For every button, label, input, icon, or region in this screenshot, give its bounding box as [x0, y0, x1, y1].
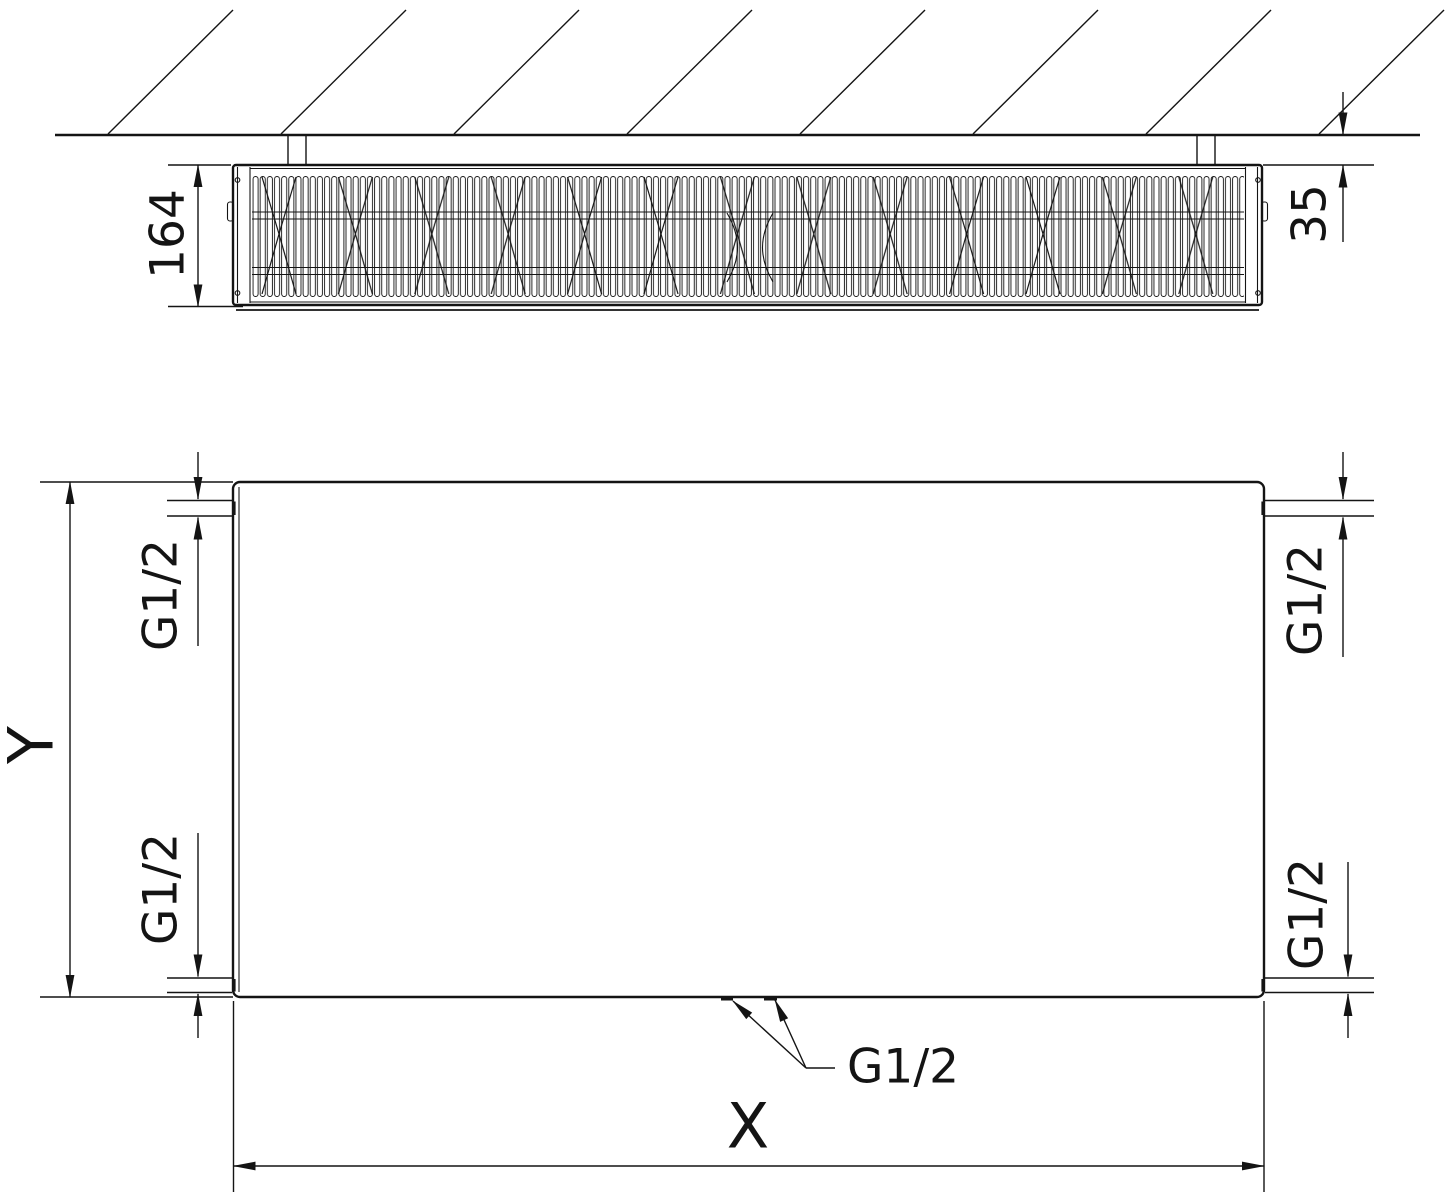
connection-stub-bottom-right — [1263, 978, 1374, 993]
width-dimension-label: X — [727, 1090, 769, 1163]
dimension-wall-gap: 35 — [1263, 92, 1374, 244]
mounting-bracket-left — [288, 136, 306, 165]
height-dimension-label: Y — [0, 726, 68, 765]
g12-label-bottom-right: G1/2 — [1280, 858, 1335, 970]
connection-stub-bottom-left — [167, 978, 234, 993]
bottom-connection-notch — [764, 997, 777, 1001]
callout-g12-bottom-center: G1/2 — [733, 1000, 959, 1095]
callout-g12-bottom-right: G1/2 — [1280, 858, 1349, 1038]
connection-stub-top-left — [167, 501, 234, 517]
wall-hatching — [108, 10, 1444, 134]
g12-label-top-right: G1/2 — [1279, 544, 1334, 656]
radiator-top-view-body — [228, 165, 1268, 310]
front-view: G1/2 G1/2 G1/2 G1/2 G1/2 — [0, 452, 1374, 1192]
g12-label-bottom-left: G1/2 — [134, 833, 189, 945]
bottom-connection-notch — [721, 997, 733, 1001]
top-view: 164 35 — [55, 10, 1444, 310]
radiator-front-panel — [233, 482, 1264, 997]
wall-gap-dimension-label: 35 — [1283, 184, 1338, 244]
mounting-bracket-right — [1197, 136, 1215, 165]
connection-stub-top-right — [1263, 501, 1374, 517]
g12-label-bottom-center: G1/2 — [847, 1040, 959, 1095]
callout-g12-bottom-left: G1/2 — [134, 833, 199, 1038]
convector-fins — [252, 176, 1244, 297]
dimension-depth: 164 — [141, 165, 244, 307]
drawing-svg: 164 35 — [0, 0, 1447, 1201]
callout-g12-top-right: G1/2 — [1279, 452, 1344, 657]
radiator-technical-drawing: 164 35 — [0, 0, 1447, 1201]
depth-dimension-label: 164 — [141, 189, 196, 279]
dimension-width-x: X — [234, 1001, 1265, 1192]
g12-label-top-left: G1/2 — [134, 539, 189, 651]
